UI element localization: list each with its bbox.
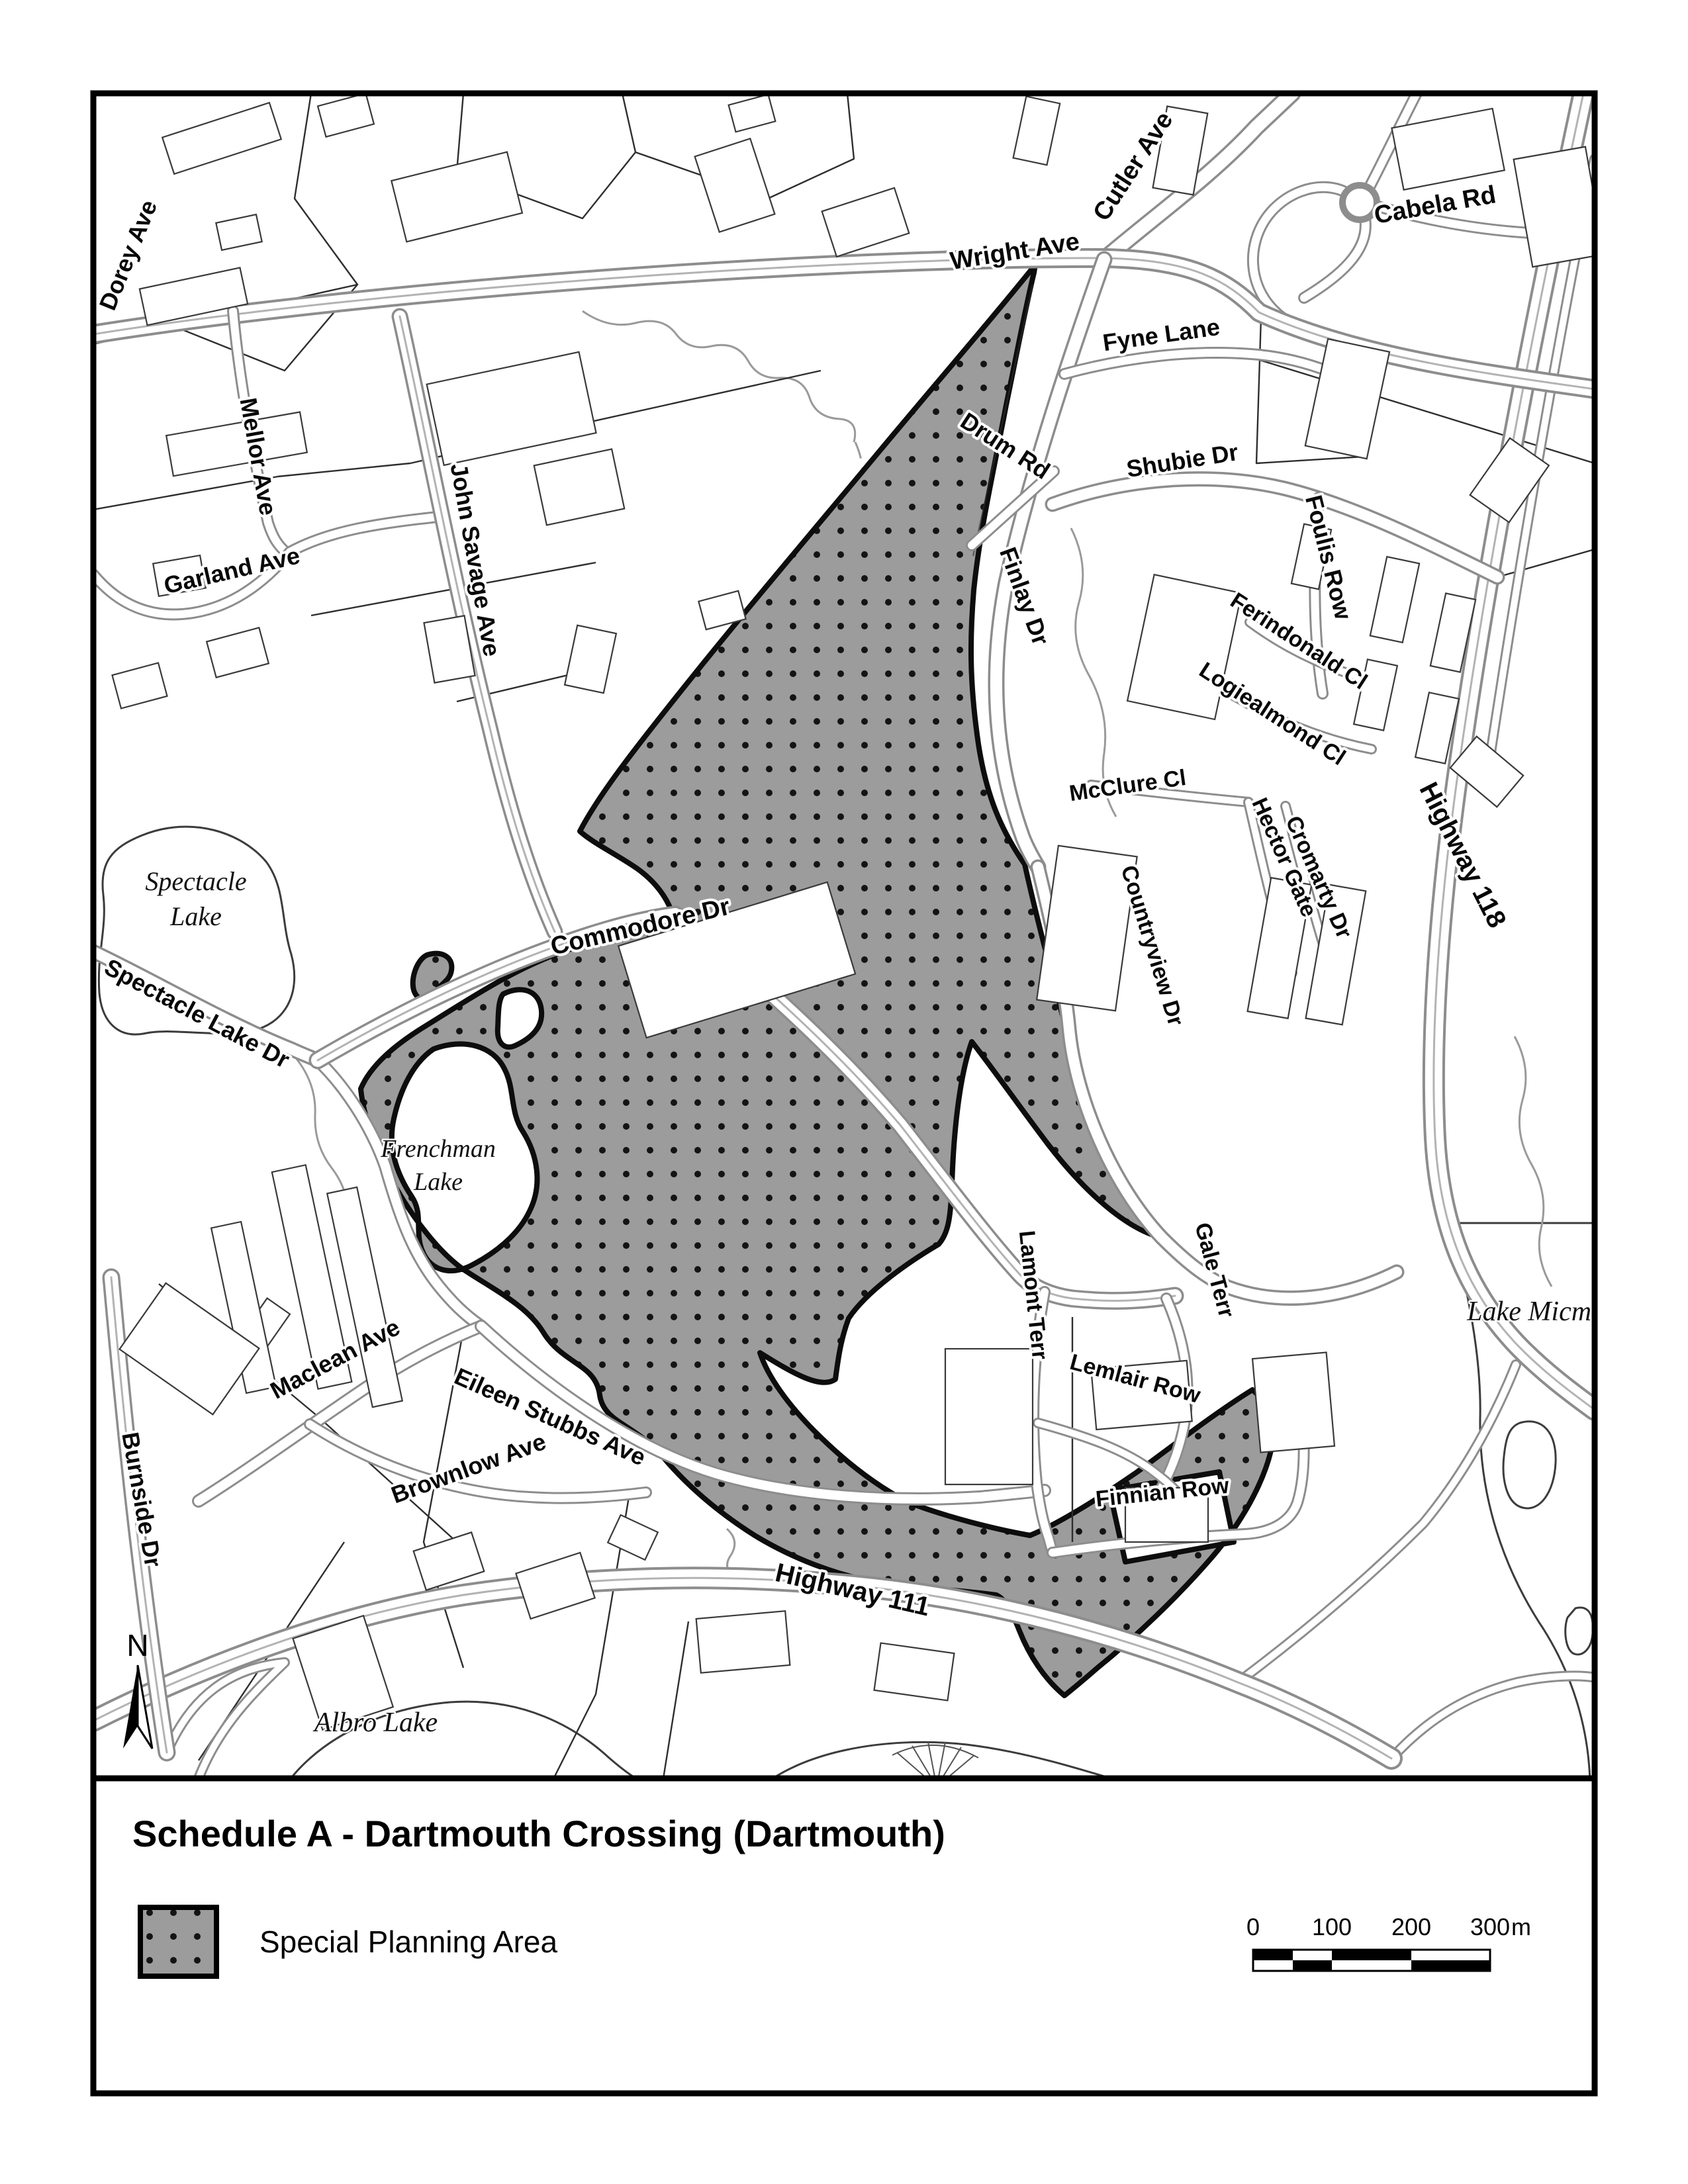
water-label-frenchman: Frenchman bbox=[380, 1135, 496, 1163]
water-label-lake: Lake bbox=[169, 901, 222, 931]
north-label: N bbox=[126, 1628, 148, 1662]
water-label-spectacle: Spectacle bbox=[145, 866, 246, 896]
legend-swatch bbox=[140, 1907, 216, 1976]
schedule-a-map: Dorey AveWright AveCutler AveCabela RdFy… bbox=[0, 0, 1688, 2184]
scale-tick-200: 200 bbox=[1391, 1913, 1431, 1940]
scale-tick-0: 0 bbox=[1246, 1913, 1260, 1940]
map-title: Schedule A - Dartmouth Crossing (Dartmou… bbox=[132, 1813, 945, 1854]
water-label-lake: Lake bbox=[413, 1168, 463, 1196]
legend-label: Special Planning Area bbox=[259, 1925, 558, 1959]
scale-tick-100: 100 bbox=[1312, 1913, 1352, 1940]
scale-tick-300: 300 bbox=[1470, 1913, 1510, 1940]
lake-micmac-island-2 bbox=[1566, 1608, 1593, 1655]
lake-micmac-island bbox=[1503, 1422, 1556, 1508]
water-label-albro-lake: Albro Lake bbox=[312, 1707, 438, 1738]
scale-tick-m: m bbox=[1511, 1913, 1531, 1940]
